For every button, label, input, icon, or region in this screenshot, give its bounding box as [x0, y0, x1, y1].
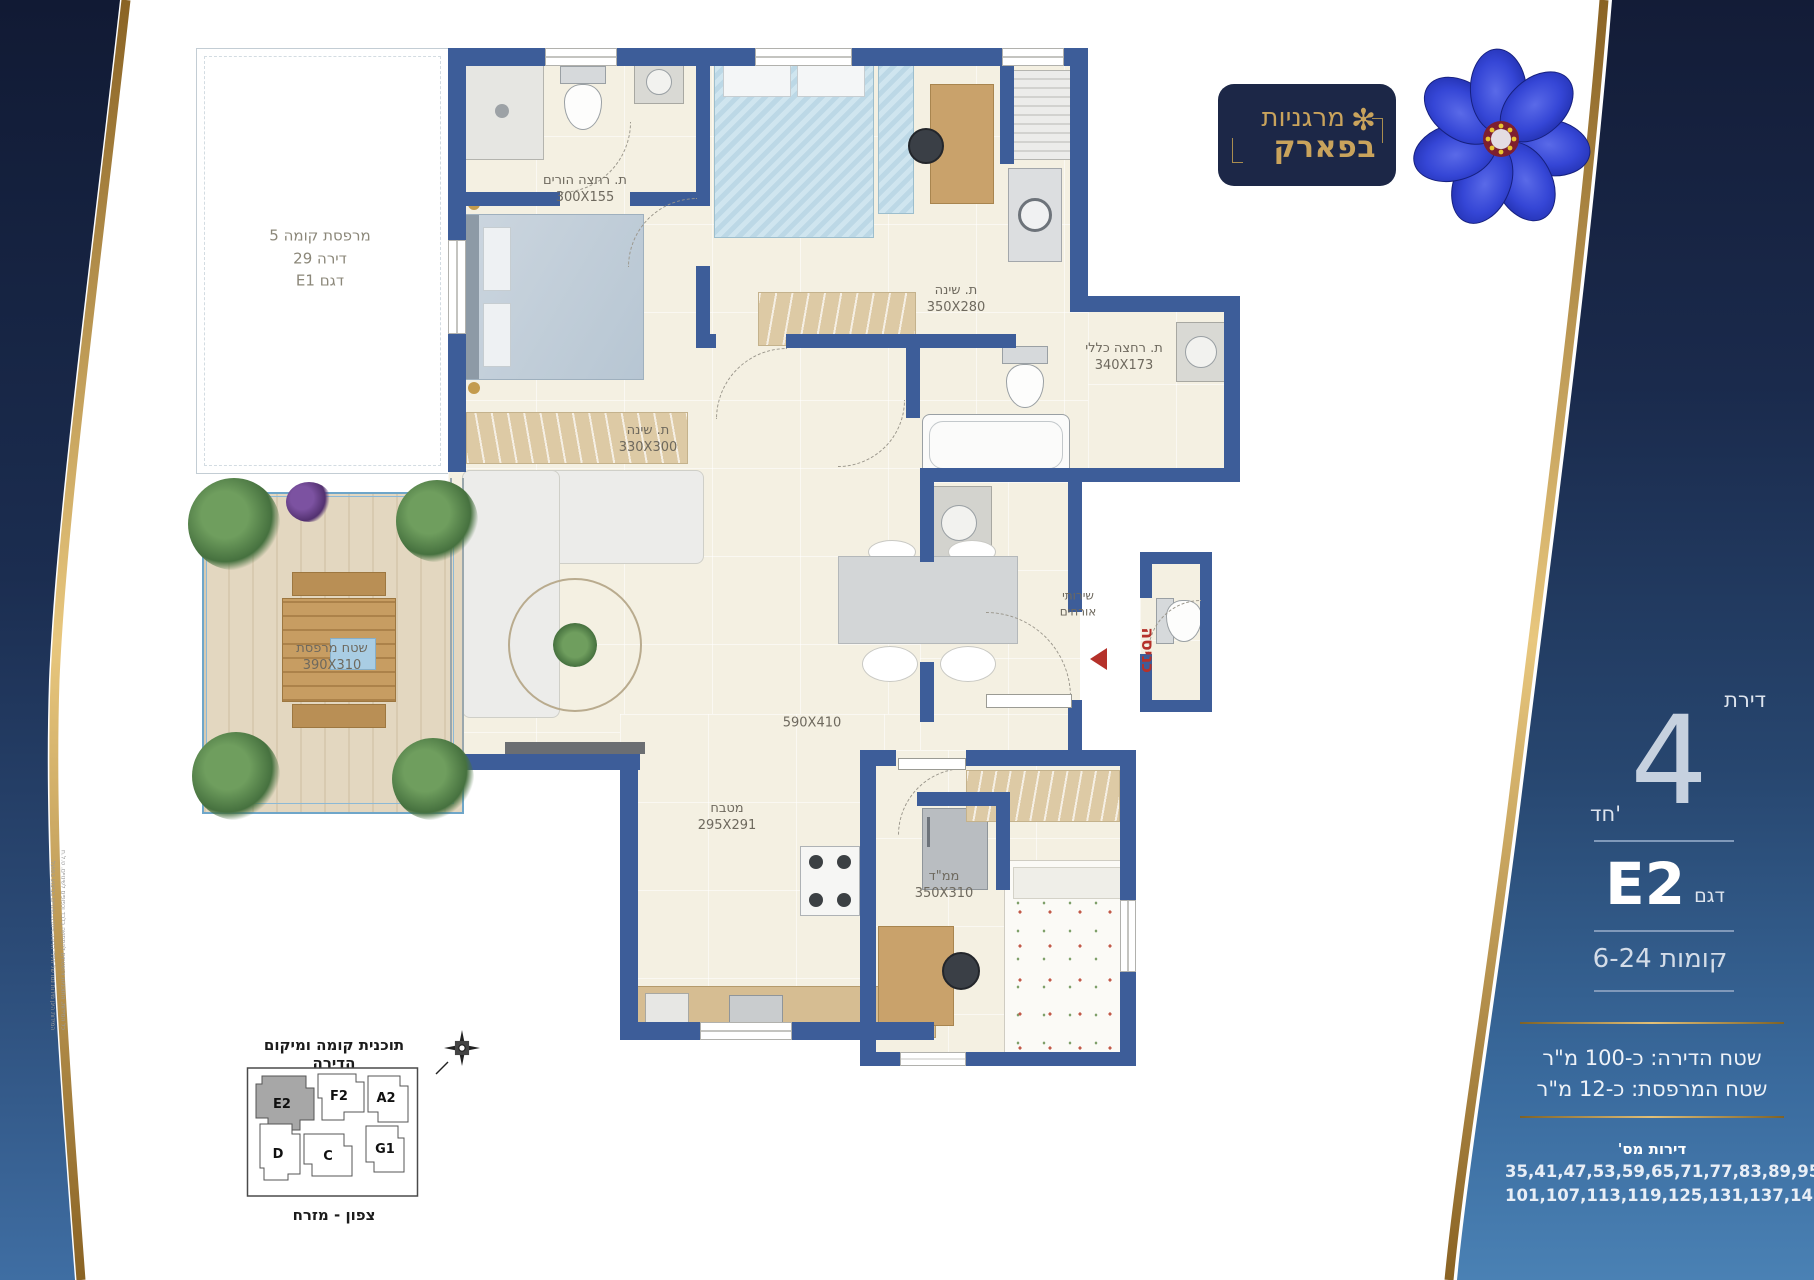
bathtub-icon: [922, 414, 1070, 476]
plant-icon: [286, 482, 332, 522]
balcony-area: שטח המרפסת: כ-12 מ"ר: [1520, 1077, 1784, 1101]
wall-segment: [696, 334, 716, 348]
room-dims: 300X155: [543, 190, 627, 207]
room-dims: 590X410: [783, 716, 842, 733]
entrance-arrow-icon: [1090, 648, 1107, 670]
brand-name-line1-row: ✻ מרגניות: [1261, 105, 1376, 131]
room-label-guest-wc: שירותי אורחים: [1060, 588, 1097, 619]
neighbor-balcony-line1: מרפסת קומה 5: [269, 224, 370, 247]
floor-corridor: [920, 714, 1080, 754]
disclaimer-microtext: כל המידות, התוכניות והשטחים להמחשה בלבד …: [46, 815, 68, 1030]
room-name: אורחים: [1060, 604, 1097, 620]
sink-icon: [634, 60, 684, 104]
room-dims: 340X173: [1085, 358, 1163, 375]
neighbor-balcony-line2: דירה 29: [269, 247, 370, 270]
door-leaf: [898, 758, 966, 770]
door-leaf: [986, 694, 1072, 708]
bed-icon: [462, 214, 644, 380]
window: [448, 240, 466, 334]
sink-basin-icon: [646, 69, 672, 95]
divider: [1594, 840, 1734, 842]
pillow-icon: [483, 227, 511, 291]
wall-segment: [786, 334, 1016, 348]
wall-segment: [920, 468, 1240, 482]
disclaimer-line: כל המידות, התוכניות והשטחים להמחשה בלבד …: [57, 815, 68, 1030]
room-label-bedroom-top: ת. שינה 350X280: [927, 283, 986, 317]
rooms-number: 4: [1630, 700, 1708, 822]
room-name: שטח מרפסת: [296, 641, 368, 658]
sink-basin-icon: [1185, 336, 1217, 368]
pillow-icon: [723, 65, 791, 97]
room-name: מטבח: [698, 801, 757, 818]
apartment-rooms-group: 4 דירת חד': [1584, 690, 1754, 832]
brand-logo: ✻ מרגניות בפארק: [1218, 84, 1396, 186]
wall-segment: [448, 332, 466, 472]
dining-plate-icon: [862, 646, 918, 682]
keyplan-unit-g1-label: G1: [375, 1142, 395, 1157]
disclaimer-line: המידות הינן מידות נטו של חללי הדירה ויית…: [46, 815, 57, 1030]
toilet-icon: [1002, 346, 1048, 364]
round-rug-icon: [508, 578, 642, 712]
gold-divider: [1520, 1022, 1784, 1024]
window: [1120, 900, 1136, 972]
room-dims: 390X310: [296, 658, 368, 675]
pillow-icon: [797, 65, 865, 97]
model-word: דגם: [1694, 885, 1725, 912]
toilet-icon: [560, 66, 606, 84]
plant-icon: [392, 738, 474, 820]
keyplan-unit-a2-label: A2: [376, 1091, 395, 1106]
neighbor-balcony-label: מרפסת קומה 5 דירה 29 דגם E1: [269, 224, 370, 292]
room-label-kitchen: מטבח 295X291: [698, 801, 757, 835]
rooms-suffix: חד': [1590, 802, 1621, 826]
room-name: שירותי: [1060, 588, 1097, 604]
room-name: ממ"ד: [915, 869, 974, 886]
divider: [1594, 930, 1734, 932]
pillow-icon: [483, 303, 511, 367]
apartment-area: שטח הדירה: כ-100 מ"ר: [1520, 1046, 1784, 1070]
washing-machine-door-icon: [1018, 198, 1052, 232]
keyplan-unit-e2-label: E2: [273, 1097, 291, 1112]
shower-icon: [460, 62, 544, 160]
floors-range: קומות 6-24: [1560, 944, 1760, 974]
pillow-icon: [1013, 867, 1123, 899]
balcony-bench: [292, 704, 386, 728]
sink-basin-icon: [941, 505, 977, 541]
keyplan-unit-d-label: D: [273, 1147, 284, 1162]
room-label-bath-general: ת. רחצה כללי 340X173: [1085, 341, 1163, 375]
model-number: E2: [1605, 857, 1685, 912]
compass-icon: [430, 1022, 490, 1086]
keyplan-unit-c-label: C: [323, 1149, 333, 1164]
model-group: E2 דגם: [1570, 846, 1760, 912]
wall-segment: [696, 48, 710, 196]
apartments-numbers-line2: 101,107,113,119,125,131,137,143: [1505, 1186, 1799, 1205]
room-name: ת. שינה: [619, 423, 678, 440]
wall-segment: [920, 482, 934, 562]
sink-icon: [1176, 322, 1226, 382]
stove-icon: [800, 846, 860, 916]
chair-icon: [942, 952, 980, 990]
wall-segment: [1224, 296, 1240, 482]
wall-segment: [620, 1022, 700, 1040]
wall-segment: [1200, 552, 1212, 712]
plant-icon: [396, 480, 478, 562]
neighbor-balcony-line3: דגם E1: [269, 269, 370, 292]
wall-segment: [620, 754, 638, 1040]
logo-bracket-icon: [1232, 138, 1243, 163]
apartments-title: דירות מס': [1520, 1140, 1784, 1158]
wall-segment: [906, 348, 920, 418]
floorplan-page: מרפסת קומה 5 דירה 29 דגם E1: [0, 0, 1814, 1280]
wall-segment: [1070, 48, 1088, 312]
bed-icon: [1004, 860, 1130, 1054]
lamp-icon: [468, 382, 480, 394]
wall-segment: [448, 754, 640, 770]
room-dims: 295X291: [698, 818, 757, 835]
washing-machine-icon: [1008, 168, 1062, 262]
keyplan-unit-f2-label: F2: [330, 1089, 348, 1104]
wall-segment: [860, 750, 876, 1066]
keyplan-caption: צפון - מזרח: [246, 1206, 422, 1224]
bed-icon: [714, 58, 874, 238]
tv-console-icon: [505, 742, 645, 754]
room-dims: 350X310: [915, 886, 974, 903]
keyplan-diagram: E2 F2 A2 D C G1: [246, 1066, 422, 1202]
flower-photo-icon: [1386, 44, 1616, 234]
room-dims: 330X300: [619, 440, 678, 457]
wall-segment: [920, 662, 934, 722]
window: [1002, 48, 1064, 66]
plant-icon: [553, 623, 597, 667]
window: [545, 48, 617, 66]
burner-icon: [809, 893, 823, 907]
bathtub-inner-icon: [929, 421, 1063, 469]
balcony-bench: [292, 572, 386, 596]
room-name: ת. רחצה הורים: [543, 173, 627, 190]
window: [700, 1022, 792, 1040]
wall-segment: [996, 792, 1010, 890]
room-label-balcony: שטח מרפסת 390X310: [296, 641, 368, 675]
burner-icon: [837, 855, 851, 869]
room-label-mamad: ממ"ד 350X310: [915, 869, 974, 903]
wall-segment: [1140, 552, 1152, 598]
apartment-word: דירת: [1724, 688, 1766, 712]
room-name: ת. שינה: [927, 283, 986, 300]
room-label-bedroom-left: ת. שינה 330X300: [619, 423, 678, 457]
room-label-bath-parents: ת. רחצה הורים 300X155: [543, 173, 627, 207]
brand-name-line1: מרגניות: [1261, 105, 1344, 131]
divider: [1594, 990, 1734, 992]
room-label-living-dims: 590X410: [783, 716, 842, 733]
burner-icon: [809, 855, 823, 869]
apartments-numbers-line1: 35,41,47,53,59,65,71,77,83,89,95: [1505, 1162, 1799, 1181]
window: [755, 48, 852, 66]
wall-segment: [448, 48, 466, 240]
shower-drain-icon: [495, 104, 509, 118]
chair-icon: [908, 128, 944, 164]
logo-bracket-icon: [1372, 118, 1383, 143]
plant-icon: [188, 478, 280, 570]
window: [900, 1052, 966, 1066]
wall-segment: [1070, 296, 1240, 312]
room-name: ת. רחצה כללי: [1085, 341, 1163, 358]
plant-icon: [192, 732, 280, 820]
room-dims: 350X280: [927, 300, 986, 317]
gold-divider: [1520, 1116, 1784, 1118]
wall-segment: [966, 750, 1136, 766]
burner-icon: [837, 893, 851, 907]
wall-segment: [1120, 750, 1136, 900]
